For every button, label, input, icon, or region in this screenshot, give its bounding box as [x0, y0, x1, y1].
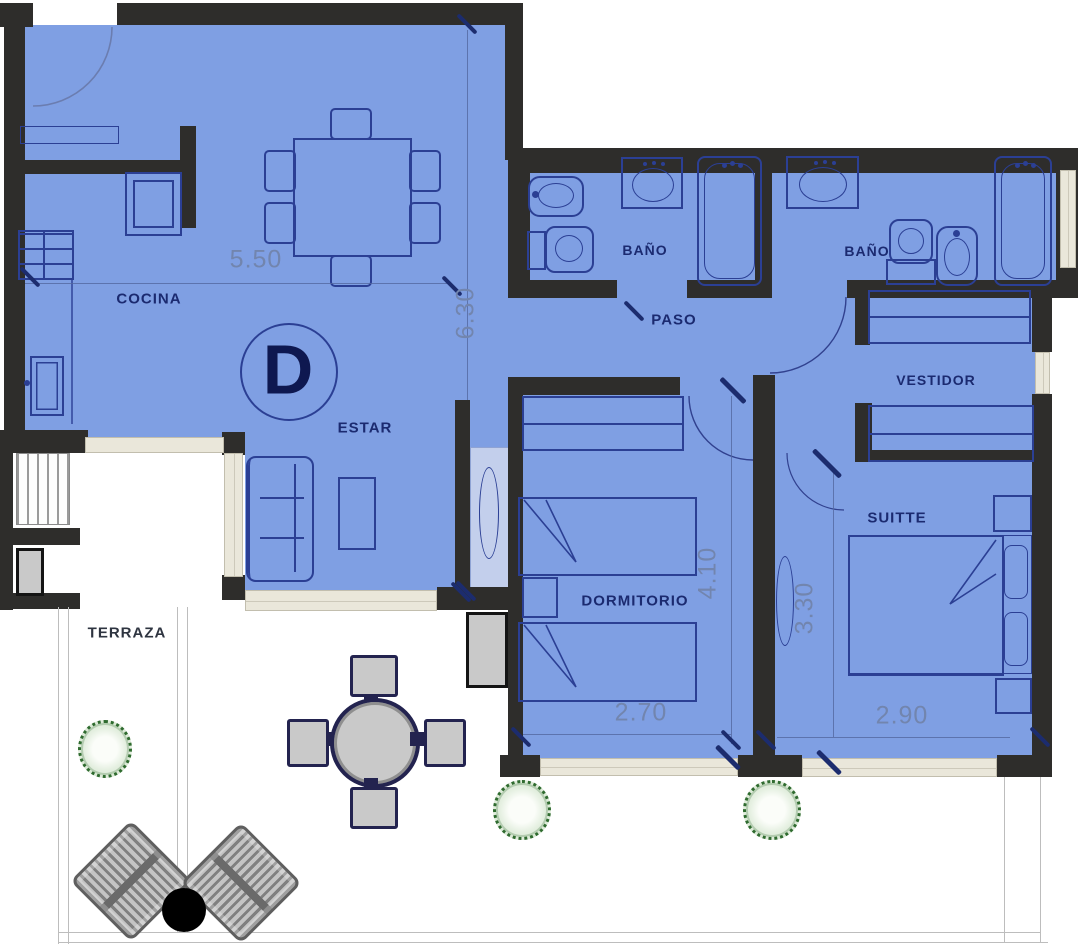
wall — [738, 755, 802, 777]
window-bath2 — [1060, 170, 1076, 268]
dim-line-2-70 — [523, 734, 731, 735]
wall — [0, 430, 88, 453]
faucet-icon — [24, 380, 30, 386]
outdoor-chair — [424, 719, 466, 767]
terrace-edge — [1004, 777, 1005, 942]
room-label-suitte: SUITTE — [867, 510, 926, 527]
basin-bowl — [632, 168, 674, 202]
wall — [222, 575, 245, 600]
outdoor-chair — [287, 719, 329, 767]
dining-chair — [264, 150, 296, 192]
outdoor-chair — [350, 787, 398, 829]
nightstand — [995, 678, 1032, 714]
wall — [0, 430, 13, 610]
terrace-planter — [466, 612, 508, 688]
room-label-estar: ESTAR — [338, 420, 393, 437]
pillow — [1004, 612, 1028, 666]
nightstand — [993, 495, 1032, 532]
wall-kitchen — [180, 126, 196, 228]
dim-line-3-30 — [833, 470, 834, 737]
chair-stub — [410, 732, 424, 746]
dining-chair — [264, 202, 296, 244]
lintel — [85, 437, 224, 453]
kitchen-sink-icon — [30, 356, 64, 416]
side-table-icon — [162, 888, 206, 932]
dim-line-4-10 — [731, 396, 732, 744]
outdoor-chair — [350, 655, 398, 697]
basin-bowl — [799, 167, 847, 202]
plant-icon — [743, 780, 801, 840]
closet — [868, 405, 1034, 462]
tub-taps — [1023, 161, 1028, 166]
room-paso — [510, 298, 857, 377]
sofa-icon — [246, 456, 314, 582]
toilet-tank — [527, 231, 546, 270]
wall — [500, 755, 540, 777]
wall — [508, 377, 523, 775]
room-label-bano-2: BAÑO — [844, 243, 889, 259]
oven-icon — [125, 172, 182, 236]
dim-3-30: 3.30 — [791, 582, 820, 635]
wall — [1032, 283, 1052, 352]
dim-line-6-30 — [467, 30, 468, 400]
dim-5-50: 5.50 — [230, 246, 283, 275]
window-estar-left — [224, 453, 243, 577]
wall — [1050, 280, 1078, 298]
bathtub-icon — [697, 156, 762, 286]
room-label-cocina: COCINA — [116, 291, 181, 308]
dim-6-30: 6.30 — [452, 287, 481, 340]
toilet-icon — [545, 226, 594, 273]
plant-icon — [78, 720, 132, 778]
bidet-tap — [953, 230, 960, 237]
bidet-icon — [936, 226, 978, 286]
wall — [508, 280, 617, 298]
outdoor-round-table — [330, 698, 420, 788]
dim-line-5-50 — [25, 283, 448, 284]
basin-taps — [652, 161, 656, 165]
bidet-bowl — [944, 238, 970, 276]
wall — [508, 377, 680, 395]
tub-inner — [1001, 163, 1045, 279]
washbasin-icon — [621, 157, 683, 209]
wall — [455, 400, 470, 590]
wall — [1032, 394, 1052, 777]
floor-plan: D — [0, 0, 1079, 950]
dining-chair — [409, 150, 441, 192]
nightstand — [522, 577, 558, 618]
wall — [753, 375, 775, 775]
bathtub-icon — [994, 156, 1052, 286]
bidet-bowl — [538, 183, 574, 208]
dining-chair — [330, 108, 372, 140]
kitchen-counter — [20, 126, 119, 144]
wall — [222, 432, 245, 455]
toilet-icon — [889, 219, 933, 264]
tub-taps — [730, 161, 735, 166]
window-vestidor — [1035, 352, 1050, 394]
plant-icon — [493, 780, 551, 840]
wardrobe — [522, 396, 684, 451]
toilet-tank — [886, 259, 936, 285]
terrace-edge — [58, 607, 59, 944]
room-label-dormitorio: DORMITORIO — [581, 593, 688, 610]
bidet-tap — [532, 191, 539, 198]
room-label-paso: PASO — [651, 312, 696, 329]
double-bed — [848, 535, 1004, 676]
terrace-edge — [1040, 777, 1041, 942]
terrace-edge — [58, 932, 1041, 933]
washbasin-icon — [786, 156, 859, 209]
bidet-icon — [528, 176, 584, 217]
toilet-bowl — [555, 235, 583, 262]
pillow — [1004, 545, 1028, 599]
room-label-bano-1: BAÑO — [622, 242, 667, 258]
dim-2-70: 2.70 — [615, 699, 668, 728]
dim-2-90: 2.90 — [876, 702, 929, 731]
wall — [4, 3, 25, 447]
dining-table — [293, 138, 412, 257]
dim-4-10: 4.10 — [694, 547, 723, 600]
wall — [508, 157, 530, 290]
coffee-table — [338, 477, 376, 550]
wall — [505, 13, 523, 160]
dining-chair — [409, 202, 441, 244]
dim-line-2-90 — [777, 737, 1010, 738]
toilet-bowl — [898, 228, 924, 254]
window-dormitorio — [540, 758, 738, 776]
room-label-vestidor: VESTIDOR — [896, 372, 976, 388]
room-label-terraza: TERRAZA — [88, 625, 167, 642]
unit-label: D — [263, 329, 314, 409]
single-bed — [518, 497, 697, 576]
basin-taps — [823, 160, 827, 164]
closet — [868, 290, 1031, 344]
terrace-edge — [58, 942, 1048, 943]
wall — [0, 528, 80, 545]
terrace-edge — [68, 607, 69, 944]
counter-edge — [71, 278, 73, 424]
closet-door-lens — [479, 467, 499, 559]
vent-grille — [16, 453, 70, 525]
single-bed — [518, 622, 697, 702]
window-estar-bottom — [245, 590, 437, 611]
utility-box — [16, 548, 44, 596]
wall — [997, 755, 1052, 777]
tub-inner — [704, 163, 755, 279]
